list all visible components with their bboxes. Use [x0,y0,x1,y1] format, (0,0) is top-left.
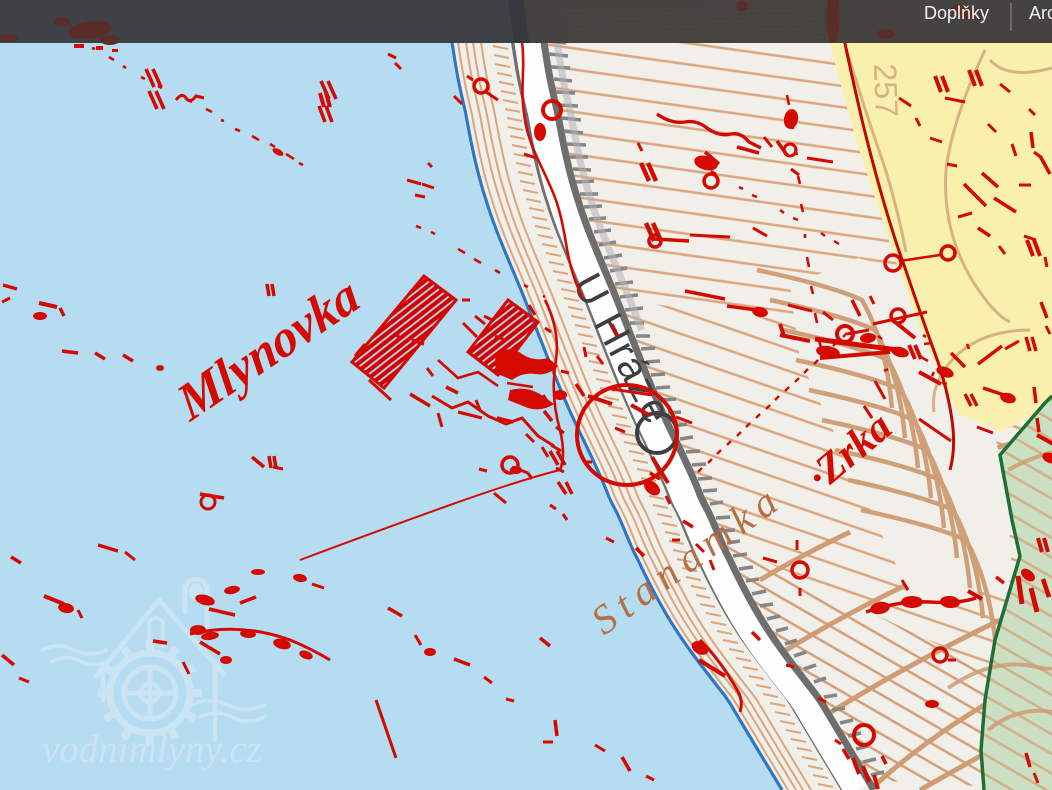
svg-text:vodnimlyny.cz: vodnimlyny.cz [42,728,262,771]
svg-text:Arc: Arc [1029,3,1052,23]
svg-text:257: 257 [867,63,905,118]
svg-text:Doplňky: Doplňky [924,3,989,23]
